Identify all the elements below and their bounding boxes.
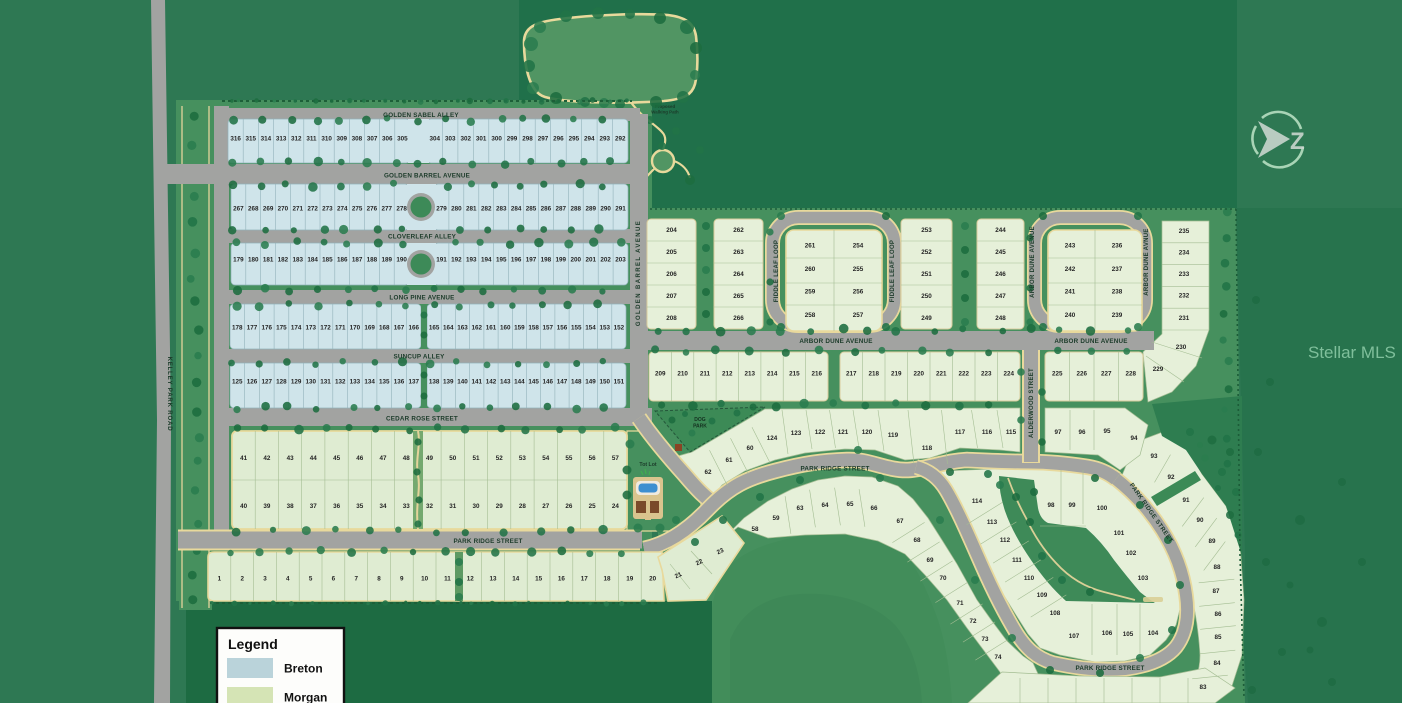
svg-text:243: 243 [1065,243,1076,250]
svg-text:65: 65 [846,501,854,508]
svg-text:Walking Path: Walking Path [651,110,679,115]
svg-text:200: 200 [571,257,582,264]
svg-text:299: 299 [507,136,518,143]
svg-text:136: 136 [394,379,405,386]
svg-text:116: 116 [982,429,993,436]
svg-text:129: 129 [291,379,302,386]
svg-text:13: 13 [489,576,497,583]
svg-text:156: 156 [557,325,568,332]
svg-text:125: 125 [232,379,243,386]
svg-text:120: 120 [862,429,873,436]
svg-text:100: 100 [1097,505,1108,512]
svg-text:214: 214 [767,371,778,378]
svg-text:282: 282 [481,206,492,213]
svg-text:49: 49 [426,455,434,462]
svg-text:68: 68 [913,537,921,544]
svg-text:181: 181 [263,257,274,264]
svg-text:164: 164 [443,325,454,332]
svg-text:138: 138 [429,379,440,386]
svg-text:230: 230 [1176,344,1187,351]
svg-text:70: 70 [939,575,947,582]
svg-text:234: 234 [1179,250,1190,257]
svg-text:283: 283 [496,206,507,213]
svg-text:279: 279 [436,206,447,213]
svg-text:DOG: DOG [694,417,706,423]
svg-text:202: 202 [600,257,611,264]
svg-text:252: 252 [921,249,932,256]
svg-text:60: 60 [746,445,754,452]
svg-text:185: 185 [322,257,333,264]
svg-text:GOLDEN SABEL ALLEY: GOLDEN SABEL ALLEY [383,112,459,119]
svg-text:73: 73 [981,636,989,643]
svg-text:233: 233 [1179,271,1190,278]
svg-text:69: 69 [926,557,934,564]
svg-text:15: 15 [535,576,543,583]
svg-text:14: 14 [512,576,520,583]
svg-text:249: 249 [921,315,932,322]
svg-text:272: 272 [307,206,318,213]
svg-text:257: 257 [853,312,864,319]
svg-text:219: 219 [891,371,902,378]
svg-text:162: 162 [472,325,483,332]
svg-text:147: 147 [557,379,568,386]
svg-text:165: 165 [429,325,440,332]
svg-text:312: 312 [291,136,302,143]
svg-text:104: 104 [1148,630,1159,637]
svg-text:154: 154 [585,325,596,332]
svg-text:ARBOR DUNE AVENUE: ARBOR DUNE AVENUE [1030,226,1036,298]
svg-text:88: 88 [1213,564,1221,571]
svg-text:269: 269 [263,206,274,213]
svg-text:309: 309 [337,136,348,143]
svg-text:72: 72 [969,618,977,625]
svg-text:83: 83 [1199,684,1207,691]
svg-text:168: 168 [379,325,390,332]
svg-text:2: 2 [240,576,244,583]
svg-text:192: 192 [451,257,462,264]
svg-text:ARBOR DUNE AVENUE: ARBOR DUNE AVENUE [799,338,872,345]
svg-text:102: 102 [1126,550,1137,557]
svg-text:55: 55 [565,455,573,462]
svg-text:Z: Z [1290,128,1304,155]
svg-text:193: 193 [466,257,477,264]
svg-text:170: 170 [350,325,361,332]
svg-text:190: 190 [396,257,407,264]
svg-text:278: 278 [396,206,407,213]
svg-text:288: 288 [571,206,582,213]
svg-text:67: 67 [896,518,904,525]
svg-text:108: 108 [1050,610,1061,617]
svg-text:180: 180 [248,257,259,264]
svg-text:158: 158 [528,325,539,332]
svg-text:54: 54 [542,455,550,462]
svg-text:153: 153 [599,325,610,332]
svg-text:119: 119 [888,432,899,439]
svg-text:58: 58 [751,526,759,533]
svg-text:85: 85 [1214,634,1222,641]
svg-text:251: 251 [921,271,932,278]
svg-text:112: 112 [1000,537,1011,544]
svg-text:239: 239 [1112,312,1123,319]
svg-text:134: 134 [364,379,375,386]
svg-text:191: 191 [436,257,447,264]
svg-text:18: 18 [603,576,611,583]
svg-text:304: 304 [429,136,440,143]
svg-text:7: 7 [354,576,358,583]
svg-text:36: 36 [333,503,341,510]
svg-text:221: 221 [936,371,947,378]
svg-text:121: 121 [838,429,849,436]
svg-text:6: 6 [332,576,336,583]
svg-text:109: 109 [1037,592,1048,599]
svg-text:PARK RIDGE STREET: PARK RIDGE STREET [1075,665,1144,672]
svg-text:241: 241 [1065,289,1076,296]
svg-text:5: 5 [309,576,313,583]
svg-text:207: 207 [666,293,677,300]
svg-text:231: 231 [1179,315,1190,322]
svg-text:9: 9 [400,576,404,583]
svg-text:93: 93 [1150,453,1158,460]
svg-text:38: 38 [287,503,295,510]
svg-text:305: 305 [397,136,408,143]
svg-text:308: 308 [352,136,363,143]
svg-text:176: 176 [261,325,272,332]
svg-text:293: 293 [600,136,611,143]
svg-text:Stellar MLS: Stellar MLS [1308,343,1396,362]
svg-text:124: 124 [767,435,778,442]
svg-text:95: 95 [1103,428,1111,435]
svg-text:274: 274 [337,206,348,213]
svg-text:178: 178 [232,325,243,332]
svg-text:FIDDLE LEAF LOOP: FIDDLE LEAF LOOP [890,240,896,302]
svg-text:240: 240 [1065,312,1076,319]
svg-text:122: 122 [815,429,826,436]
svg-text:107: 107 [1069,633,1080,640]
svg-text:37: 37 [310,503,318,510]
svg-text:26: 26 [565,503,573,510]
svg-text:183: 183 [293,257,304,264]
svg-text:211: 211 [700,371,711,378]
svg-text:213: 213 [744,371,755,378]
svg-text:199: 199 [556,257,567,264]
svg-text:127: 127 [261,379,272,386]
svg-text:12: 12 [467,576,475,583]
svg-text:174: 174 [291,325,302,332]
svg-text:248: 248 [995,315,1006,322]
svg-text:296: 296 [553,136,564,143]
svg-text:289: 289 [585,206,596,213]
svg-text:166: 166 [408,325,419,332]
svg-text:265: 265 [733,293,744,300]
svg-text:59: 59 [772,515,780,522]
svg-text:237: 237 [1112,266,1123,273]
svg-text:206: 206 [666,271,677,278]
svg-text:111: 111 [1012,557,1022,564]
svg-text:50: 50 [449,455,457,462]
svg-text:263: 263 [733,249,744,256]
svg-text:184: 184 [307,257,318,264]
svg-text:247: 247 [995,293,1006,300]
svg-text:238: 238 [1112,289,1123,296]
svg-text:28: 28 [519,503,527,510]
svg-text:271: 271 [293,206,304,213]
svg-text:146: 146 [543,379,554,386]
svg-text:254: 254 [853,243,864,250]
svg-text:175: 175 [276,325,287,332]
svg-text:84: 84 [1213,660,1221,667]
svg-text:149: 149 [585,379,596,386]
svg-text:246: 246 [995,271,1006,278]
svg-text:4: 4 [286,576,290,583]
svg-text:311: 311 [306,136,317,143]
svg-text:212: 212 [722,371,733,378]
svg-text:226: 226 [1077,371,1088,378]
svg-text:310: 310 [321,136,332,143]
svg-text:270: 270 [278,206,289,213]
svg-text:131: 131 [320,379,331,386]
svg-text:314: 314 [261,136,272,143]
svg-text:41: 41 [240,455,248,462]
svg-text:101: 101 [1114,530,1125,537]
svg-text:135: 135 [379,379,390,386]
svg-text:20: 20 [649,576,657,583]
svg-text:57: 57 [612,455,620,462]
svg-text:48: 48 [403,455,411,462]
svg-text:CEDAR ROSE STREET: CEDAR ROSE STREET [386,416,458,423]
svg-text:ARBOR DUNE AVENUE: ARBOR DUNE AVENUE [1054,338,1127,345]
svg-text:133: 133 [350,379,361,386]
svg-text:253: 253 [921,227,932,234]
svg-text:SUNCUP ALLEY: SUNCUP ALLEY [393,354,445,361]
svg-text:197: 197 [526,257,537,264]
svg-text:Morgan: Morgan [284,691,327,703]
svg-text:137: 137 [408,379,419,386]
svg-text:218: 218 [869,371,880,378]
svg-text:236: 236 [1112,243,1123,250]
svg-text:86: 86 [1214,611,1222,618]
svg-text:260: 260 [805,266,816,273]
svg-text:169: 169 [364,325,375,332]
svg-text:KELLEY PARK ROAD: KELLEY PARK ROAD [166,357,173,432]
svg-text:298: 298 [522,136,533,143]
svg-text:30: 30 [472,503,480,510]
svg-text:42: 42 [263,455,271,462]
svg-text:172: 172 [320,325,331,332]
svg-text:114: 114 [972,498,983,505]
svg-text:157: 157 [543,325,554,332]
svg-text:258: 258 [805,312,816,319]
svg-text:150: 150 [599,379,610,386]
svg-text:163: 163 [457,325,468,332]
svg-text:52: 52 [496,455,504,462]
svg-text:128: 128 [276,379,287,386]
svg-text:118: 118 [922,445,933,452]
svg-text:145: 145 [528,379,539,386]
svg-text:126: 126 [247,379,258,386]
svg-text:215: 215 [789,371,800,378]
svg-text:71: 71 [956,600,964,607]
svg-text:294: 294 [584,136,595,143]
svg-text:186: 186 [337,257,348,264]
svg-text:105: 105 [1123,631,1134,638]
svg-text:306: 306 [382,136,393,143]
svg-text:161: 161 [486,325,497,332]
svg-text:Breton: Breton [284,662,323,676]
svg-text:284: 284 [511,206,522,213]
svg-text:155: 155 [571,325,582,332]
svg-text:179: 179 [233,257,244,264]
svg-text:141: 141 [472,379,483,386]
svg-text:297: 297 [538,136,549,143]
svg-text:187: 187 [352,257,363,264]
svg-text:198: 198 [541,257,552,264]
svg-text:143: 143 [500,379,511,386]
svg-text:301: 301 [476,136,487,143]
svg-text:195: 195 [496,257,507,264]
svg-text:173: 173 [306,325,317,332]
svg-text:34: 34 [379,503,387,510]
svg-text:188: 188 [367,257,378,264]
svg-text:242: 242 [1065,266,1076,273]
svg-text:43: 43 [287,455,295,462]
svg-text:205: 205 [666,249,677,256]
svg-text:31: 31 [449,503,457,510]
svg-text:16: 16 [558,576,566,583]
svg-text:66: 66 [870,505,878,512]
svg-text:291: 291 [615,206,626,213]
svg-text:96: 96 [1078,429,1086,436]
svg-text:25: 25 [589,503,597,510]
svg-text:103: 103 [1138,575,1149,582]
svg-text:262: 262 [733,227,744,234]
svg-text:139: 139 [443,379,454,386]
svg-text:91: 91 [1182,497,1190,504]
svg-text:PARK RIDGE STREET: PARK RIDGE STREET [453,538,522,545]
svg-text:302: 302 [460,136,471,143]
svg-text:17: 17 [581,576,589,583]
svg-text:29: 29 [496,503,504,510]
svg-text:Legend: Legend [228,636,278,652]
svg-text:259: 259 [805,289,816,296]
svg-text:292: 292 [615,136,626,143]
svg-text:94: 94 [1130,435,1138,442]
svg-text:160: 160 [500,325,511,332]
svg-text:51: 51 [472,455,480,462]
svg-text:44: 44 [310,455,318,462]
svg-text:92: 92 [1167,474,1175,481]
svg-text:167: 167 [394,325,405,332]
svg-text:115: 115 [1006,429,1017,436]
svg-text:87: 87 [1212,588,1220,595]
svg-text:277: 277 [382,206,393,213]
svg-text:19: 19 [626,576,634,583]
svg-text:39: 39 [263,503,271,510]
svg-text:LONG PINE AVENUE: LONG PINE AVENUE [389,295,454,302]
svg-text:106: 106 [1102,630,1113,637]
svg-text:280: 280 [451,206,462,213]
svg-text:256: 256 [853,289,864,296]
svg-text:144: 144 [514,379,525,386]
svg-text:89: 89 [1208,538,1216,545]
svg-text:140: 140 [457,379,468,386]
svg-text:FIDDLE LEAF LOOP: FIDDLE LEAF LOOP [774,240,780,302]
svg-text:208: 208 [666,315,677,322]
svg-text:266: 266 [733,315,744,322]
svg-text:287: 287 [556,206,567,213]
svg-text:222: 222 [959,371,970,378]
svg-text:ALDERWOOD STREET: ALDERWOOD STREET [1029,368,1035,438]
svg-text:268: 268 [248,206,259,213]
svg-text:33: 33 [403,503,411,510]
svg-text:210: 210 [677,371,688,378]
svg-text:313: 313 [276,136,287,143]
svg-text:123: 123 [791,430,802,437]
svg-text:286: 286 [541,206,552,213]
svg-text:45: 45 [333,455,341,462]
svg-text:285: 285 [526,206,537,213]
svg-text:264: 264 [733,271,744,278]
svg-text:177: 177 [247,325,258,332]
svg-text:132: 132 [335,379,346,386]
svg-text:97: 97 [1054,429,1062,436]
svg-text:189: 189 [382,257,393,264]
svg-text:229: 229 [1153,366,1164,373]
svg-text:295: 295 [569,136,580,143]
svg-text:216: 216 [812,371,823,378]
svg-text:201: 201 [585,257,596,264]
svg-text:303: 303 [445,136,456,143]
svg-text:10: 10 [421,576,429,583]
svg-text:47: 47 [379,455,387,462]
svg-text:24: 24 [612,503,620,510]
svg-text:62: 62 [704,469,712,476]
svg-text:142: 142 [486,379,497,386]
svg-text:315: 315 [246,136,257,143]
svg-text:290: 290 [600,206,611,213]
svg-text:32: 32 [426,503,434,510]
svg-text:110: 110 [1024,575,1035,582]
svg-text:46: 46 [356,455,364,462]
svg-text:27: 27 [542,503,550,510]
svg-text:GOLDEN BARREL AVENUE: GOLDEN BARREL AVENUE [636,220,642,326]
svg-text:276: 276 [367,206,378,213]
svg-text:267: 267 [233,206,244,213]
svg-text:228: 228 [1126,371,1137,378]
svg-text:203: 203 [615,257,626,264]
svg-text:235: 235 [1179,228,1190,235]
svg-text:281: 281 [466,206,477,213]
svg-text:56: 56 [589,455,597,462]
svg-text:159: 159 [514,325,525,332]
svg-text:63: 63 [796,505,804,512]
svg-text:1: 1 [218,576,222,583]
svg-text:261: 261 [805,243,816,250]
svg-text:224: 224 [1004,371,1015,378]
svg-text:227: 227 [1101,371,1112,378]
svg-text:3: 3 [263,576,267,583]
svg-text:273: 273 [322,206,333,213]
svg-text:182: 182 [278,257,289,264]
svg-text:148: 148 [571,379,582,386]
svg-text:209: 209 [655,371,666,378]
svg-text:255: 255 [853,266,864,273]
svg-text:PARK: PARK [693,424,707,430]
svg-text:316: 316 [230,136,241,143]
svg-text:204: 204 [666,227,677,234]
svg-text:Tot Lot: Tot Lot [639,462,656,468]
svg-text:40: 40 [240,503,248,510]
svg-text:74: 74 [994,654,1002,661]
